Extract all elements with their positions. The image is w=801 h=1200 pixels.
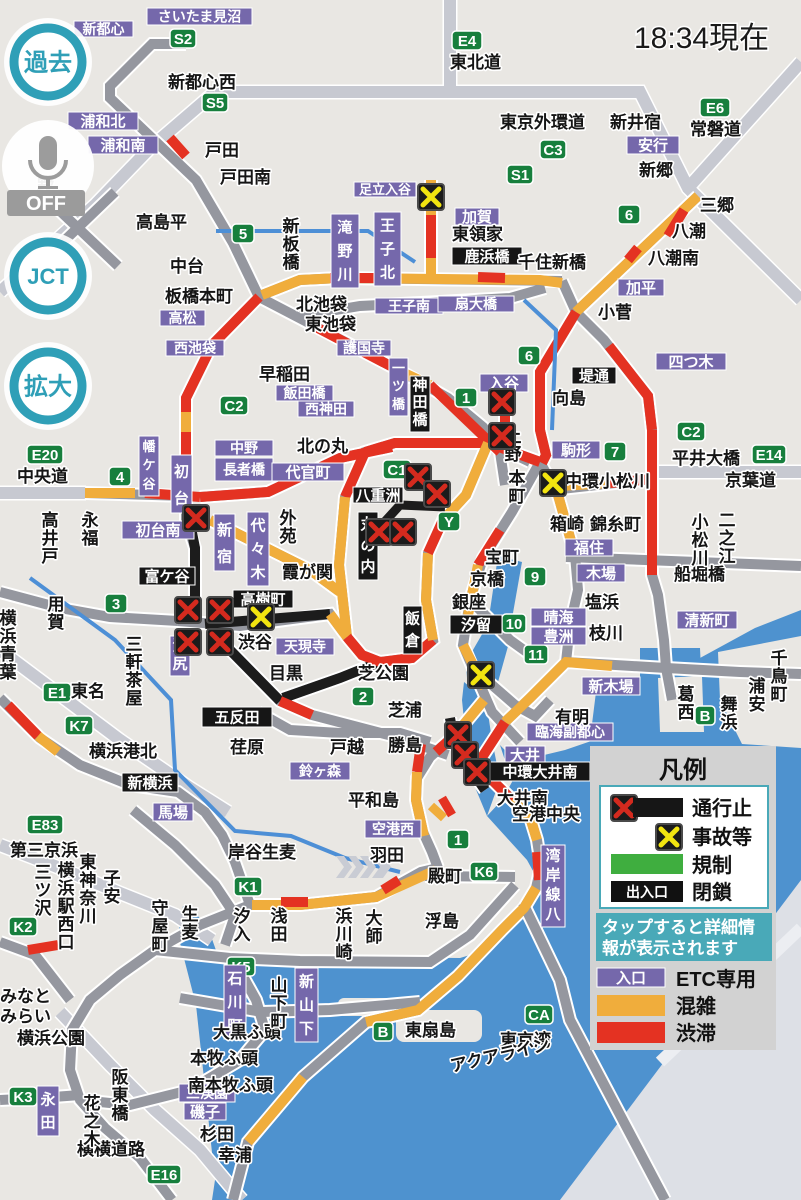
svg-text:有明: 有明 xyxy=(555,707,589,727)
svg-text:K2: K2 xyxy=(13,919,32,936)
svg-text:北の丸: 北の丸 xyxy=(297,436,349,456)
svg-text:C2: C2 xyxy=(224,398,243,415)
svg-text:K7: K7 xyxy=(69,718,88,735)
svg-text:三軒茶屋: 三軒茶屋 xyxy=(126,635,144,708)
svg-text:西神田: 西神田 xyxy=(305,401,347,417)
svg-text:さいたま見沼: さいたま見沼 xyxy=(158,9,242,25)
svg-text:馬場: 馬場 xyxy=(158,804,188,821)
svg-text:本牧ふ頭: 本牧ふ頭 xyxy=(190,1048,259,1068)
svg-text:小菅: 小菅 xyxy=(598,303,632,322)
svg-text:E6: E6 xyxy=(706,100,724,117)
svg-text:鹿浜橋: 鹿浜橋 xyxy=(464,247,510,265)
svg-text:永福: 永福 xyxy=(81,510,99,548)
svg-text:磯子: 磯子 xyxy=(190,1103,220,1121)
svg-text:銀座: 銀座 xyxy=(452,592,486,612)
svg-text:過去: 過去 xyxy=(24,50,72,77)
svg-text:天現寺: 天現寺 xyxy=(284,639,326,655)
svg-text:E14: E14 xyxy=(756,447,783,464)
svg-text:花之木: 花之木 xyxy=(83,1093,102,1149)
svg-text:外苑: 外苑 xyxy=(280,508,297,546)
svg-text:五反田: 五反田 xyxy=(214,709,259,726)
svg-text:浜川崎: 浜川崎 xyxy=(335,907,353,962)
svg-text:C3: C3 xyxy=(543,142,562,159)
svg-text:四つ木: 四つ木 xyxy=(668,353,714,371)
svg-text:4: 4 xyxy=(116,469,125,486)
svg-text:千住新橋: 千住新橋 xyxy=(518,252,587,272)
svg-text:K6: K6 xyxy=(474,864,493,881)
svg-text:新郷: 新郷 xyxy=(639,160,673,180)
svg-text:葛西: 葛西 xyxy=(677,684,695,722)
svg-text:高松: 高松 xyxy=(169,310,197,326)
svg-text:戸田南: 戸田南 xyxy=(220,167,271,187)
svg-text:東扇島: 東扇島 xyxy=(405,1020,456,1040)
svg-text:八重洲: 八重洲 xyxy=(354,486,400,504)
svg-text:安行: 安行 xyxy=(638,136,668,154)
svg-text:富ケ谷: 富ケ谷 xyxy=(144,567,190,585)
svg-text:第三京浜: 第三京浜 xyxy=(10,840,78,860)
svg-text:E20: E20 xyxy=(32,447,59,464)
svg-text:みらい: みらい xyxy=(0,1007,51,1026)
svg-text:C2: C2 xyxy=(681,424,700,441)
svg-text:護国寺: 護国寺 xyxy=(343,340,385,356)
svg-text:木場: 木場 xyxy=(585,564,616,582)
svg-text:10: 10 xyxy=(506,616,523,633)
svg-text:浮島: 浮島 xyxy=(425,911,459,931)
svg-text:K1: K1 xyxy=(238,879,257,896)
svg-text:子安: 子安 xyxy=(104,869,121,906)
svg-text:横浜公園: 横浜公園 xyxy=(17,1028,85,1048)
svg-text:宝町: 宝町 xyxy=(485,547,519,567)
svg-text:東池袋: 東池袋 xyxy=(305,314,357,334)
svg-text:中野: 中野 xyxy=(230,440,258,456)
svg-text:E83: E83 xyxy=(32,817,59,834)
svg-text:高島平: 高島平 xyxy=(136,212,187,232)
svg-text:北池袋: 北池袋 xyxy=(296,294,348,314)
svg-text:汐入: 汐入 xyxy=(234,906,251,944)
svg-text:幸浦: 幸浦 xyxy=(218,1145,252,1165)
svg-text:阪東橋: 阪東橋 xyxy=(112,1068,130,1123)
svg-text:小松川: 小松川 xyxy=(691,513,709,568)
svg-text:羽田: 羽田 xyxy=(370,846,404,865)
svg-text:C1: C1 xyxy=(387,462,406,479)
svg-text:足立入谷: 足立入谷 xyxy=(359,182,412,197)
svg-text:6: 6 xyxy=(525,348,533,365)
svg-text:東領家: 東領家 xyxy=(452,224,503,244)
svg-text:11: 11 xyxy=(528,647,544,664)
svg-text:6: 6 xyxy=(625,207,633,224)
svg-text:新都心: 新都心 xyxy=(83,21,125,37)
svg-text:霞が関: 霞が関 xyxy=(282,562,333,582)
svg-text:中環小松川: 中環小松川 xyxy=(565,471,650,491)
svg-text:大師: 大師 xyxy=(366,908,383,946)
svg-text:横浜青葉: 横浜青葉 xyxy=(0,608,18,682)
svg-text:神田橋: 神田橋 xyxy=(412,376,428,429)
svg-text:目黒: 目黒 xyxy=(269,664,303,683)
svg-text:一ツ橋: 一ツ橋 xyxy=(392,360,406,411)
svg-text:18:34現在: 18:34現在 xyxy=(634,22,769,55)
svg-text:塩浜: 塩浜 xyxy=(585,592,619,612)
svg-text:豊洲: 豊洲 xyxy=(543,627,573,645)
svg-text:報が表示されます: 報が表示されます xyxy=(602,938,738,958)
svg-text:千鳥町: 千鳥町 xyxy=(771,649,788,704)
svg-text:S1: S1 xyxy=(511,167,529,184)
svg-text:浦和北: 浦和北 xyxy=(80,112,125,130)
svg-text:E1: E1 xyxy=(48,685,66,702)
svg-text:戸越: 戸越 xyxy=(330,737,365,757)
svg-text:長者橋: 長者橋 xyxy=(223,462,266,478)
svg-text:高井戸: 高井戸 xyxy=(42,510,59,566)
svg-text:浅田: 浅田 xyxy=(271,906,288,944)
svg-text:殿町: 殿町 xyxy=(427,867,462,886)
svg-text:勝島: 勝島 xyxy=(388,735,422,755)
svg-text:1: 1 xyxy=(462,390,470,407)
svg-text:京橋: 京橋 xyxy=(470,569,505,589)
svg-text:浦和南: 浦和南 xyxy=(100,136,145,154)
svg-text:加平: 加平 xyxy=(625,280,656,297)
svg-text:山下町: 山下町 xyxy=(271,976,288,1031)
svg-text:八潮南: 八潮南 xyxy=(648,248,699,268)
svg-text:王子北: 王子北 xyxy=(380,218,395,282)
svg-text:平和島: 平和島 xyxy=(348,790,399,810)
svg-text:岸谷生麦: 岸谷生麦 xyxy=(228,842,297,862)
svg-text:空港中央: 空港中央 xyxy=(512,804,581,824)
svg-text:東京外環道: 東京外環道 xyxy=(500,112,585,132)
svg-text:代々木: 代々木 xyxy=(249,517,266,582)
svg-text:戸田: 戸田 xyxy=(205,141,239,160)
svg-text:用賀: 用賀 xyxy=(47,595,65,632)
svg-text:芝浦: 芝浦 xyxy=(388,700,422,720)
svg-text:通行止: 通行止 xyxy=(692,796,752,820)
svg-text:事故等: 事故等 xyxy=(692,825,752,849)
svg-text:7: 7 xyxy=(611,444,619,461)
svg-text:錦糸町: 錦糸町 xyxy=(590,514,641,534)
svg-text:福住: 福住 xyxy=(573,539,604,557)
svg-text:枝川: 枝川 xyxy=(589,623,623,643)
svg-text:清新町: 清新町 xyxy=(684,611,729,629)
svg-text:東名: 東名 xyxy=(71,681,105,701)
svg-text:中環大井南: 中環大井南 xyxy=(502,763,577,781)
svg-text:中台: 中台 xyxy=(170,256,204,276)
svg-text:扇大橋: 扇大橋 xyxy=(455,296,498,312)
svg-text:鈴ヶ森: 鈴ヶ森 xyxy=(299,763,342,779)
svg-text:板橋本町: 板橋本町 xyxy=(165,286,233,306)
svg-text:9: 9 xyxy=(531,569,539,586)
svg-text:晴海: 晴海 xyxy=(543,608,573,626)
svg-text:渋谷: 渋谷 xyxy=(238,632,273,652)
svg-text:本町: 本町 xyxy=(509,468,526,506)
svg-text:東神奈川: 東神奈川 xyxy=(79,852,98,926)
svg-text:3: 3 xyxy=(112,596,120,613)
svg-text:E16: E16 xyxy=(151,1167,178,1184)
svg-text:ETC専用: ETC専用 xyxy=(676,967,756,991)
svg-text:混雑: 混雑 xyxy=(676,994,716,1018)
svg-text:渋滞: 渋滞 xyxy=(676,1021,716,1045)
svg-text:幡ケ谷: 幡ケ谷 xyxy=(142,439,156,491)
svg-text:S5: S5 xyxy=(206,95,224,112)
svg-text:三郷: 三郷 xyxy=(700,195,734,215)
svg-text:東北道: 東北道 xyxy=(450,52,501,72)
svg-text:平井大橋: 平井大橋 xyxy=(672,448,741,468)
svg-text:八潮: 八潮 xyxy=(672,221,706,241)
svg-text:駒形: 駒形 xyxy=(561,441,591,459)
svg-text:1: 1 xyxy=(454,832,462,849)
svg-text:生麦: 生麦 xyxy=(182,904,200,942)
svg-text:みなと: みなと xyxy=(0,987,51,1006)
svg-text:5: 5 xyxy=(239,226,247,243)
svg-text:守屋町: 守屋町 xyxy=(152,898,169,954)
svg-text:向島: 向島 xyxy=(552,388,586,408)
svg-text:閉鎖: 閉鎖 xyxy=(692,880,733,904)
svg-text:早稲田: 早稲田 xyxy=(259,365,310,384)
svg-text:加賀: 加賀 xyxy=(461,208,492,226)
svg-text:凡例: 凡例 xyxy=(659,757,707,784)
svg-text:規制: 規制 xyxy=(692,854,732,877)
svg-text:京葉道: 京葉道 xyxy=(725,470,776,490)
svg-text:新板橋: 新板橋 xyxy=(283,216,301,272)
svg-text:B: B xyxy=(700,708,711,725)
svg-text:入口: 入口 xyxy=(616,970,646,987)
svg-text:タップすると詳細情: タップすると詳細情 xyxy=(602,917,755,937)
svg-text:横浜駅西口: 横浜駅西口 xyxy=(57,860,76,952)
svg-text:常磐道: 常磐道 xyxy=(690,119,741,139)
svg-text:杉田: 杉田 xyxy=(200,1124,234,1144)
svg-text:代官町: 代官町 xyxy=(284,463,330,481)
svg-text:荏原: 荏原 xyxy=(230,737,264,757)
svg-text:新木場: 新木場 xyxy=(588,677,633,695)
svg-text:K3: K3 xyxy=(13,1089,32,1106)
svg-text:E4: E4 xyxy=(458,33,477,50)
svg-text:新山下: 新山下 xyxy=(299,973,314,1038)
svg-text:空港西: 空港西 xyxy=(372,821,414,837)
svg-text:王子南: 王子南 xyxy=(388,298,430,314)
svg-text:JCT: JCT xyxy=(27,264,69,289)
svg-text:拡大: 拡大 xyxy=(24,374,72,401)
svg-text:箱崎: 箱崎 xyxy=(550,514,584,534)
svg-text:B: B xyxy=(378,1024,389,1041)
svg-text:芝公園: 芝公園 xyxy=(358,663,409,683)
svg-text:2: 2 xyxy=(359,689,367,706)
svg-text:出入口: 出入口 xyxy=(626,884,668,900)
svg-text:初台南: 初台南 xyxy=(135,521,180,539)
svg-text:汐留: 汐留 xyxy=(461,616,491,634)
svg-text:舞浜: 舞浜 xyxy=(721,694,738,732)
svg-text:西池袋: 西池袋 xyxy=(174,340,217,356)
svg-text:横浜港北: 横浜港北 xyxy=(89,741,157,761)
svg-text:中央道: 中央道 xyxy=(17,466,68,486)
svg-text:二之江: 二之江 xyxy=(719,511,736,566)
svg-text:南本牧ふ頭: 南本牧ふ頭 xyxy=(188,1075,274,1095)
svg-text:三ツ沢: 三ツ沢 xyxy=(35,863,53,918)
svg-text:Y: Y xyxy=(444,514,454,531)
svg-text:CA: CA xyxy=(528,1007,550,1024)
svg-text:堤通: 堤通 xyxy=(579,368,609,385)
svg-text:滝野川: 滝野川 xyxy=(336,219,352,284)
svg-text:OFF: OFF xyxy=(26,193,66,215)
svg-text:浦安: 浦安 xyxy=(749,676,766,714)
svg-text:S2: S2 xyxy=(174,31,192,48)
svg-text:新井宿: 新井宿 xyxy=(610,112,661,132)
svg-text:新都心西: 新都心西 xyxy=(168,72,236,92)
svg-text:新横浜: 新横浜 xyxy=(127,774,172,792)
svg-text:飯田橋: 飯田橋 xyxy=(283,385,327,401)
